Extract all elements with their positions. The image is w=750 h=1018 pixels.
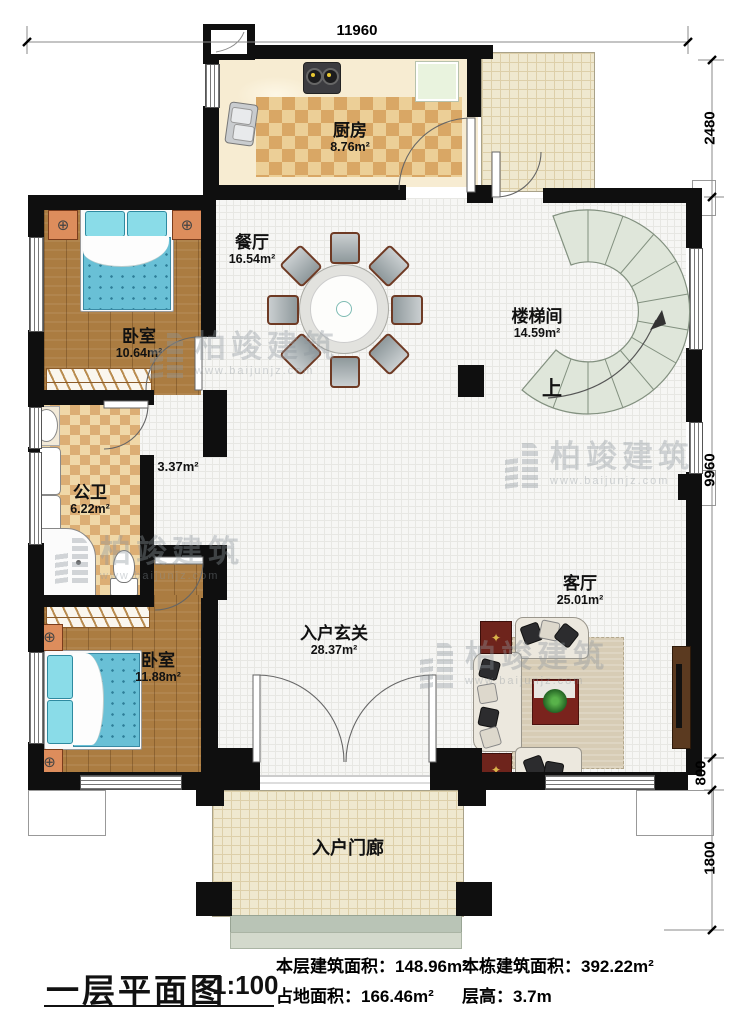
shower-drain	[76, 560, 81, 565]
living-bottom-window	[545, 775, 655, 790]
kitchen-bottom-wall	[203, 185, 406, 200]
corner-outline-bottom-left	[28, 790, 106, 836]
chimney-inner	[211, 30, 247, 54]
kitchen-window	[205, 64, 220, 108]
living-name: 客厅	[557, 574, 604, 593]
stat-floor-area: 本层建筑面积：148.96m²	[276, 952, 468, 977]
toilet-bowl	[113, 550, 135, 583]
kitchen-name: 厨房	[330, 121, 370, 140]
bedroom1-top-wall	[28, 195, 216, 210]
fridge	[416, 62, 458, 101]
dining-name: 餐厅	[229, 233, 276, 252]
label-corridor: 3.37m²	[157, 460, 198, 475]
kitchen-sink-basin-1	[230, 107, 253, 126]
floor-plan: ⊕ ⊕ ⊕ ⊕ ✦ ✦	[0, 0, 750, 1018]
label-porch: 入户门廊	[312, 838, 384, 858]
dining-chair	[330, 356, 360, 388]
dim-right-4: 1800	[702, 841, 719, 874]
right-wall-a	[686, 188, 702, 248]
bedroom2-bottom-window	[80, 775, 182, 790]
label-bedroom1: 卧室 10.64m²	[116, 327, 163, 360]
dim-top: 11960	[337, 22, 378, 39]
bedroom2-entry-floor	[152, 560, 203, 600]
stat-label: 本栋建筑面积：	[462, 957, 581, 976]
porch-name: 入户门廊	[312, 838, 384, 858]
dining-chair	[391, 295, 423, 325]
lamp-icon: ⊕	[181, 218, 194, 233]
bedroom1-area: 10.64m²	[116, 346, 163, 360]
bathroom-window-1	[29, 407, 42, 449]
bathroom-bottom-wall	[28, 595, 154, 607]
right-wall-c	[686, 472, 702, 502]
bed1-pillow-2	[127, 211, 167, 237]
corner-outline-bottom-right	[636, 790, 714, 836]
bathroom-window-2	[29, 452, 42, 545]
stat-value: 166.46m²	[361, 987, 434, 1006]
dining-table-center	[336, 301, 352, 317]
bathroom-name: 公卫	[70, 483, 110, 502]
kitchen-right-wall	[467, 59, 481, 117]
entry-frame-left	[214, 748, 260, 790]
corridor-area: 3.37m²	[157, 460, 198, 475]
kitchen-corner-wall	[467, 185, 493, 203]
label-kitchen: 厨房 8.76m²	[330, 121, 370, 154]
nightstand-2: ⊕	[172, 210, 202, 240]
label-dining: 餐厅 16.54m²	[229, 233, 276, 266]
dining-chair	[267, 295, 299, 325]
dining-chair	[330, 232, 360, 264]
living-area: 25.01m²	[557, 593, 604, 607]
terrace-floor	[481, 52, 595, 192]
nightstand-1: ⊕	[48, 210, 78, 240]
stair-up-text: 上	[542, 378, 562, 400]
porch-step-2	[230, 932, 462, 949]
stat-building-area: 本栋建筑面积：392.22m²	[462, 952, 654, 977]
porch-pilaster-left	[196, 790, 224, 806]
side-table-1: ✦	[480, 621, 512, 654]
stairwell-window-1	[689, 248, 703, 350]
bathroom-area: 6.22m²	[70, 502, 110, 516]
foyer-area: 28.37m²	[300, 643, 368, 657]
label-stairwell: 楼梯间 14.59m²	[512, 307, 563, 340]
bed1-pillow-1	[85, 211, 125, 237]
lamp-icon: ⊕	[43, 630, 56, 645]
title-underline	[44, 1005, 274, 1007]
corridor-right-wall	[203, 390, 227, 457]
lamp-icon: ⊕	[43, 755, 56, 770]
label-living: 客厅 25.01m²	[557, 574, 604, 607]
porch-column-right	[456, 882, 492, 916]
label-bedroom2: 卧室 11.88m²	[135, 651, 181, 684]
bedroom1-window	[29, 237, 44, 332]
burner-1	[306, 68, 323, 85]
kitchen-sink-basin-2	[232, 124, 255, 143]
bedroom1-name: 卧室	[116, 327, 163, 346]
right-wall-b	[686, 348, 702, 422]
porch-column-left	[196, 882, 232, 916]
bedroom2-window	[29, 652, 44, 744]
bedroom2-area: 11.88m²	[135, 670, 181, 684]
stairwell-area: 14.59m²	[512, 326, 563, 340]
entry-frame-right	[430, 748, 482, 790]
label-stair-up: 上	[542, 378, 562, 400]
dining-area: 16.54m²	[229, 252, 276, 266]
burner-2	[322, 68, 339, 85]
bedroom2-name: 卧室	[135, 651, 181, 670]
stat-label: 本层建筑面积：	[276, 957, 395, 976]
burner-dot-2	[327, 73, 331, 77]
dim-right-3: 800	[693, 760, 710, 785]
burner-dot-1	[311, 73, 315, 77]
stair-column	[458, 365, 484, 397]
bedroom2-nook-top-wall	[150, 545, 227, 560]
stat-land-area: 占地面积：166.46m²	[276, 982, 434, 1007]
stat-value: 148.96m²	[395, 957, 468, 976]
stairwell-name: 楼梯间	[512, 307, 563, 326]
bedroom2-nook-right-wall	[203, 560, 227, 600]
tv-screen	[676, 664, 682, 728]
kitchen-area: 8.76m²	[330, 140, 370, 154]
stat-label: 占地面积：	[276, 987, 361, 1006]
sofa-pillow	[477, 706, 500, 729]
stat-floor-height: 层高：3.7m	[462, 982, 552, 1007]
main-top-wall	[543, 188, 688, 203]
stat-value: 3.7m	[513, 987, 552, 1006]
porch-pilaster-right	[458, 790, 486, 806]
bathroom-top-wall	[28, 390, 154, 405]
bedroom1-right-wall	[201, 195, 216, 337]
bathroom-right-wall	[140, 455, 154, 597]
bed2-pillow-2	[47, 700, 73, 744]
label-bathroom: 公卫 6.22m²	[70, 483, 110, 516]
stat-label: 层高：	[462, 987, 513, 1006]
left-wall-d	[28, 742, 44, 775]
plan-scale: 1:100	[212, 970, 279, 1001]
foyer-name: 入户玄关	[300, 624, 368, 643]
bedroom2-right-wall	[201, 598, 218, 775]
kitchen-left-wall-b	[203, 106, 219, 187]
sofa-pillow	[476, 682, 498, 704]
stat-value: 392.22m²	[581, 957, 654, 976]
plant	[543, 689, 567, 713]
dim-right-1: 2480	[702, 111, 719, 144]
bed2-pillow-1	[47, 655, 73, 699]
lamp-icon: ⊕	[57, 218, 70, 233]
label-foyer: 入户玄关 28.37m²	[300, 624, 368, 657]
dim-right-2: 9960	[702, 453, 719, 486]
